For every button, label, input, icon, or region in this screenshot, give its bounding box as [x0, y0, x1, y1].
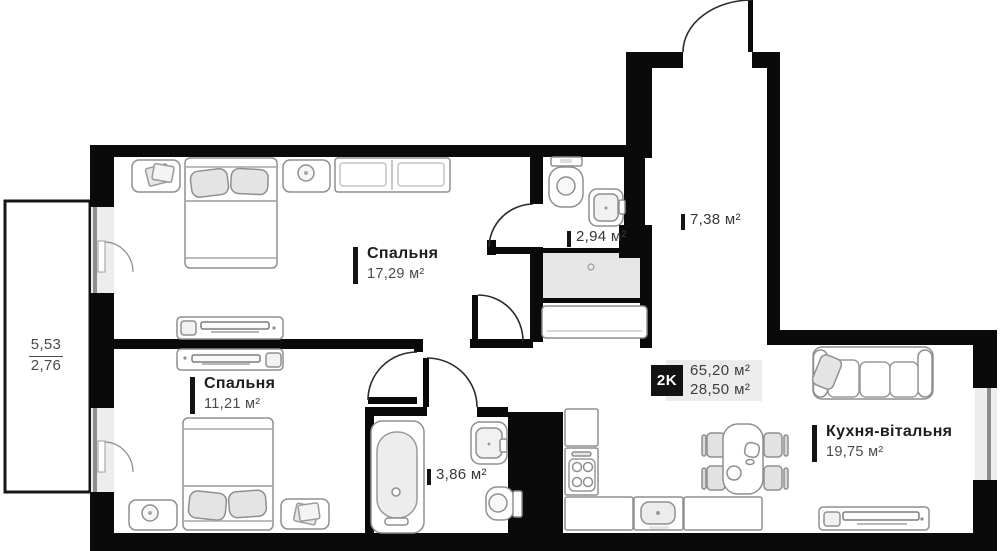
sofa-icon [811, 347, 933, 399]
balcony-door-unit-bottom [91, 408, 133, 492]
balcony-dim-bottom: 2,76 [31, 357, 61, 374]
label-bar [353, 247, 358, 284]
room-label-kitchen: Кухня-вітальня 19,75 м² [812, 423, 952, 462]
room-name: Кухня-вітальня [826, 423, 952, 441]
apartment-total-area: 65,20 м² [690, 362, 762, 380]
kitchen-tall-unit [565, 409, 598, 446]
tv-stand-icon [177, 349, 283, 370]
room-area: 7,38 м² [690, 212, 741, 229]
balcony-dimensions: 5,53 2,76 [20, 336, 72, 376]
label-bar [190, 377, 195, 414]
toilet-icon [549, 157, 583, 207]
bedroom1-door-arc [478, 295, 523, 341]
label-bar [427, 469, 431, 485]
kitchen-sink-icon [634, 497, 683, 530]
nightstand-icon [281, 499, 329, 529]
nightstand-icon [129, 500, 177, 530]
nightstand-icon [132, 160, 180, 192]
hall-cabinet-icon [542, 306, 647, 338]
room-area: 11,21 м² [204, 396, 275, 412]
entry-door-arc [683, 0, 752, 52]
bedroom2-door-arc [368, 352, 417, 400]
tv-stand-icon [177, 317, 283, 339]
room-label-bathroom-large: 3,86 м² [427, 467, 487, 485]
dining-table-icon [723, 424, 763, 494]
apartment-living-area: 28,50 м² [690, 381, 762, 399]
double-bed-icon [183, 418, 273, 530]
nightstand-icon [283, 160, 330, 192]
room-name: Спальня [204, 375, 275, 393]
wardrobe-icon [335, 158, 450, 192]
balcony-dim-top: 5,53 [29, 336, 63, 357]
room-area: 19,75 м² [826, 444, 952, 460]
room-area: 2,94 м² [576, 229, 627, 246]
sink-icon [471, 422, 507, 464]
room-label-bedroom1: Спальня 17,29 м² [353, 245, 438, 284]
room-name: Спальня [367, 245, 438, 263]
room-area: 3,86 м² [436, 467, 487, 484]
label-bar [812, 425, 817, 462]
bathtub-icon [371, 421, 424, 533]
label-bar [567, 231, 571, 247]
apartment-type-badge: 2K [651, 365, 683, 396]
floor-plan: Спальня 17,29 м² Спальня 11,21 м² Кухня-… [0, 0, 1000, 551]
room-area: 17,29 м² [367, 266, 438, 282]
stove-icon [565, 448, 598, 495]
sink-icon [589, 189, 625, 226]
label-bar [681, 214, 685, 230]
floor-plan-canvas [0, 0, 1000, 551]
toilet-icon [486, 487, 522, 520]
room-label-bedroom2: Спальня 11,21 м² [190, 375, 275, 414]
double-bed-icon [185, 158, 277, 268]
tv-stand-icon [819, 507, 929, 530]
room-label-hallway: 7,38 м² [681, 212, 741, 230]
bathroom-door-arc [427, 358, 477, 407]
kitchen-window-icon [975, 388, 997, 480]
room-label-bathroom-small: 2,94 м² [567, 229, 627, 247]
balcony-door-unit-top [91, 207, 133, 293]
